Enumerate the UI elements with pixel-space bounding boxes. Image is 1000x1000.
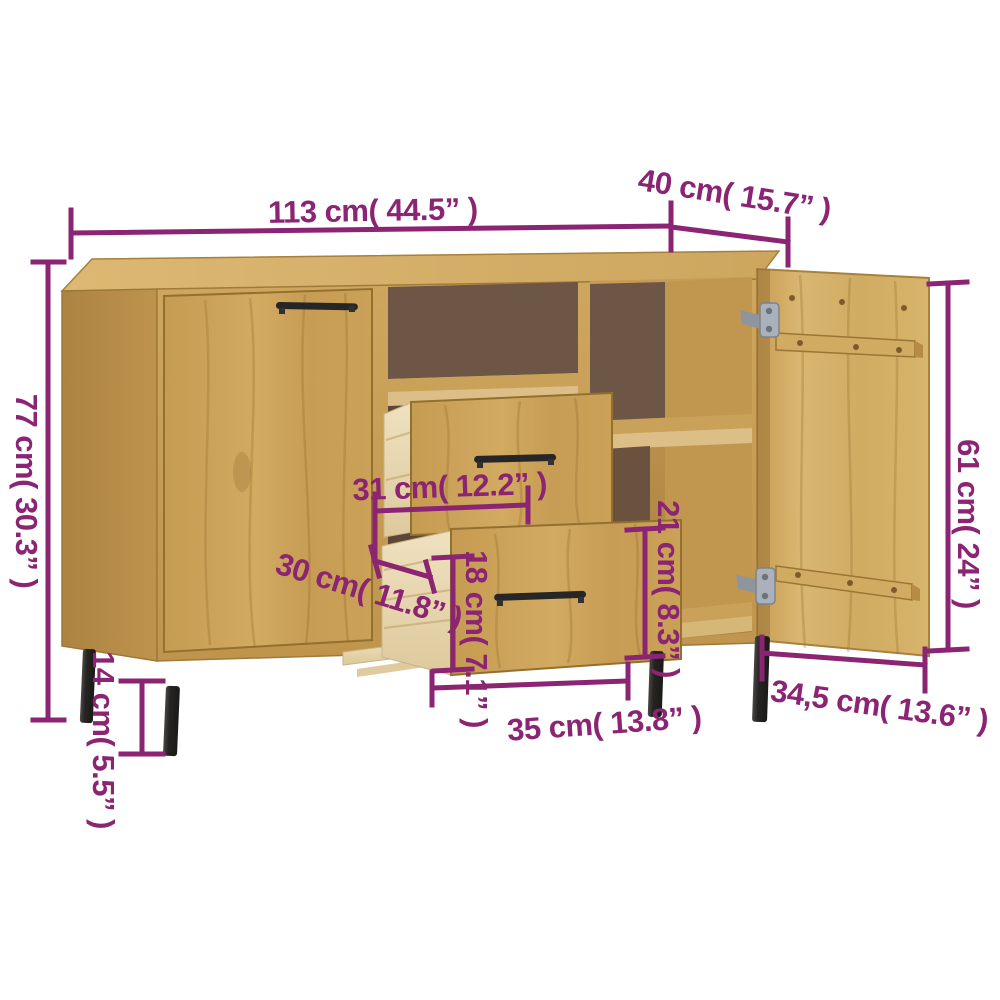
- sideboard-diagram-canvas: 113 cm( 44.5” ) 40 cm( 15.7” ) 77 cm( 30…: [0, 0, 1000, 1000]
- upper-drawer: [384, 393, 612, 537]
- dimension-overall-width: 113 cm( 44.5” ): [71, 191, 671, 257]
- dimension-label-drawer-inner-width: 31 cm( 12.2” ): [352, 466, 548, 508]
- dimension-interior-depth: 34,5 cm( 13.6” ): [762, 637, 991, 738]
- middle-compartment-back-panel: [388, 282, 578, 379]
- dimension-label-leg-height: 14 cm( 5.5” ): [86, 651, 121, 829]
- dimension-label-overall-height: 77 cm( 30.3” ): [9, 394, 44, 589]
- dimension-label-drawer-front-height: 18 cm( 7.1” ): [459, 550, 494, 728]
- dimension-label-drawer-front-width: 35 cm( 13.8” ): [506, 699, 703, 747]
- dimension-label-interior-depth: 34,5 cm( 13.6” ): [768, 673, 990, 738]
- upper-drawer-front: [411, 393, 612, 535]
- dimension-label-compartment-height: 21 cm( 8.3” ): [651, 500, 686, 678]
- dimension-label-door-height: 61 cm( 24” ): [951, 439, 986, 609]
- dimension-label-overall-width: 113 cm( 44.5” ): [268, 191, 478, 230]
- dimension-leg-height: 14 cm( 5.5” ): [86, 651, 163, 829]
- dimension-label-overall-depth: 40 cm( 15.7” ): [636, 162, 834, 227]
- leg-front-left: [163, 686, 180, 757]
- dimension-overall-height: 77 cm( 30.3” ): [9, 262, 64, 720]
- right-open-door: [736, 269, 929, 656]
- middle-open-compartment: [388, 282, 578, 406]
- cabinet-left-side: [62, 289, 157, 661]
- dimension-overall-depth: 40 cm( 15.7” ): [636, 162, 834, 265]
- dimension-diagram: 113 cm( 44.5” ) 40 cm( 15.7” ) 77 cm( 30…: [0, 0, 1000, 1000]
- dimension-door-height: 61 cm( 24” ): [929, 282, 986, 651]
